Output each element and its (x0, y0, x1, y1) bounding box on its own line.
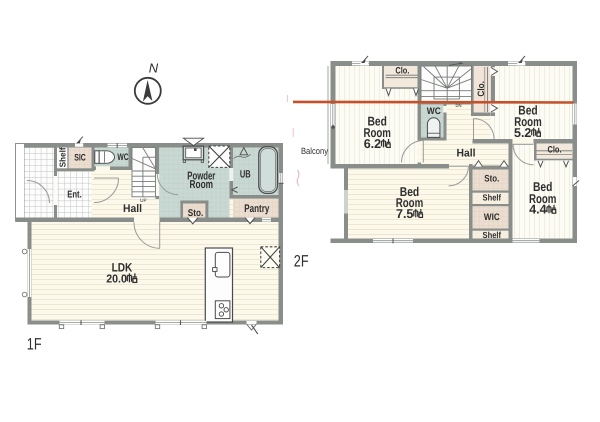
svg-text:6.2: 6.2 (364, 136, 381, 151)
svg-text:4.4: 4.4 (529, 202, 547, 217)
svg-text:Pantry: Pantry (244, 203, 270, 215)
svg-text:Clo.: Clo. (476, 81, 486, 97)
svg-text:LDK: LDK (112, 260, 133, 274)
svg-text:Ent.: Ent. (67, 190, 82, 201)
svg-text:Shelf: Shelf (483, 193, 502, 203)
svg-text:Balcony: Balcony (301, 146, 328, 156)
svg-text:SIC: SIC (74, 152, 86, 163)
svg-text:7.5: 7.5 (396, 206, 413, 221)
svg-text:Hall: Hall (457, 147, 476, 159)
svg-text:Room: Room (190, 179, 214, 191)
svg-text:1F: 1F (27, 335, 42, 353)
svg-text:UP: UP (140, 198, 147, 204)
svg-text:Clo.: Clo. (548, 144, 562, 154)
svg-text:DN: DN (456, 103, 462, 108)
svg-text:Shelf: Shelf (58, 147, 68, 167)
svg-text:5.2: 5.2 (514, 125, 531, 140)
svg-text:Shelf: Shelf (483, 230, 502, 240)
svg-text:N: N (149, 61, 159, 76)
svg-text:WC: WC (117, 152, 128, 163)
svg-text:UB: UB (240, 169, 251, 181)
svg-text:WC: WC (427, 106, 441, 117)
svg-text:Sto.: Sto. (484, 173, 499, 184)
svg-text:WIC: WIC (484, 212, 500, 223)
svg-text:Clo.: Clo. (395, 66, 409, 76)
svg-text:2F: 2F (294, 253, 309, 271)
svg-text:Sto.: Sto. (188, 208, 204, 219)
svg-text:Hall: Hall (123, 203, 142, 215)
svg-text:20.0: 20.0 (106, 273, 127, 285)
